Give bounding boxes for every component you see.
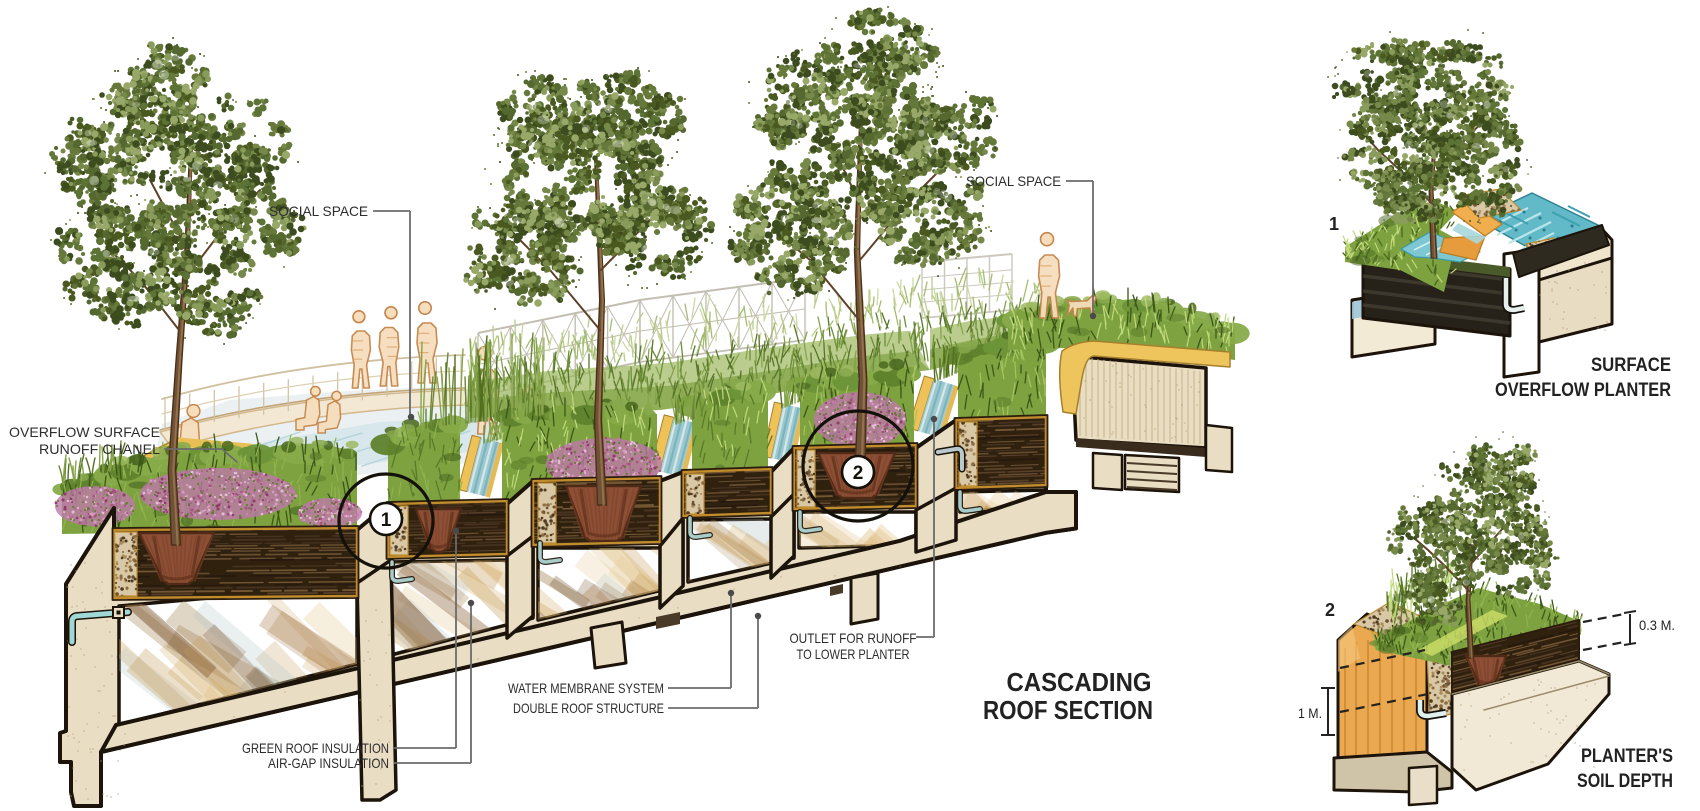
- svg-text:SOIL DEPTH: SOIL DEPTH: [1577, 771, 1673, 792]
- svg-text:PLANTER'S: PLANTER'S: [1581, 746, 1673, 767]
- svg-text:WATER MEMBRANE SYSTEM: WATER MEMBRANE SYSTEM: [508, 680, 664, 696]
- svg-text:1 M.: 1 M.: [1298, 706, 1322, 721]
- svg-text:1: 1: [381, 510, 392, 531]
- svg-text:GREEN ROOF INSULATION: GREEN ROOF INSULATION: [242, 740, 389, 756]
- svg-text:0.3 M.: 0.3 M.: [1639, 618, 1675, 633]
- svg-text:RUNOFF CHANEL: RUNOFF CHANEL: [39, 441, 160, 457]
- svg-text:SOCIAL SPACE: SOCIAL SPACE: [269, 203, 368, 219]
- svg-text:SOCIAL SPACE: SOCIAL SPACE: [966, 173, 1061, 189]
- svg-text:ROOF SECTION: ROOF SECTION: [983, 695, 1153, 725]
- svg-text:OVERFLOW SURFACE: OVERFLOW SURFACE: [9, 424, 160, 440]
- svg-text:1: 1: [1329, 214, 1340, 234]
- svg-text:SURFACE: SURFACE: [1591, 355, 1671, 376]
- svg-text:OVERFLOW PLANTER: OVERFLOW PLANTER: [1495, 380, 1671, 401]
- svg-text:2: 2: [1325, 600, 1336, 620]
- svg-text:DOUBLE ROOF STRUCTURE: DOUBLE ROOF STRUCTURE: [513, 700, 664, 716]
- svg-text:2: 2: [853, 463, 864, 484]
- svg-text:CASCADING: CASCADING: [1007, 667, 1152, 697]
- svg-text:TO LOWER PLANTER: TO LOWER PLANTER: [797, 646, 910, 662]
- svg-text:OUTLET FOR RUNOFF: OUTLET FOR RUNOFF: [790, 630, 917, 646]
- svg-text:AIR-GAP INSULATION: AIR-GAP INSULATION: [268, 755, 389, 771]
